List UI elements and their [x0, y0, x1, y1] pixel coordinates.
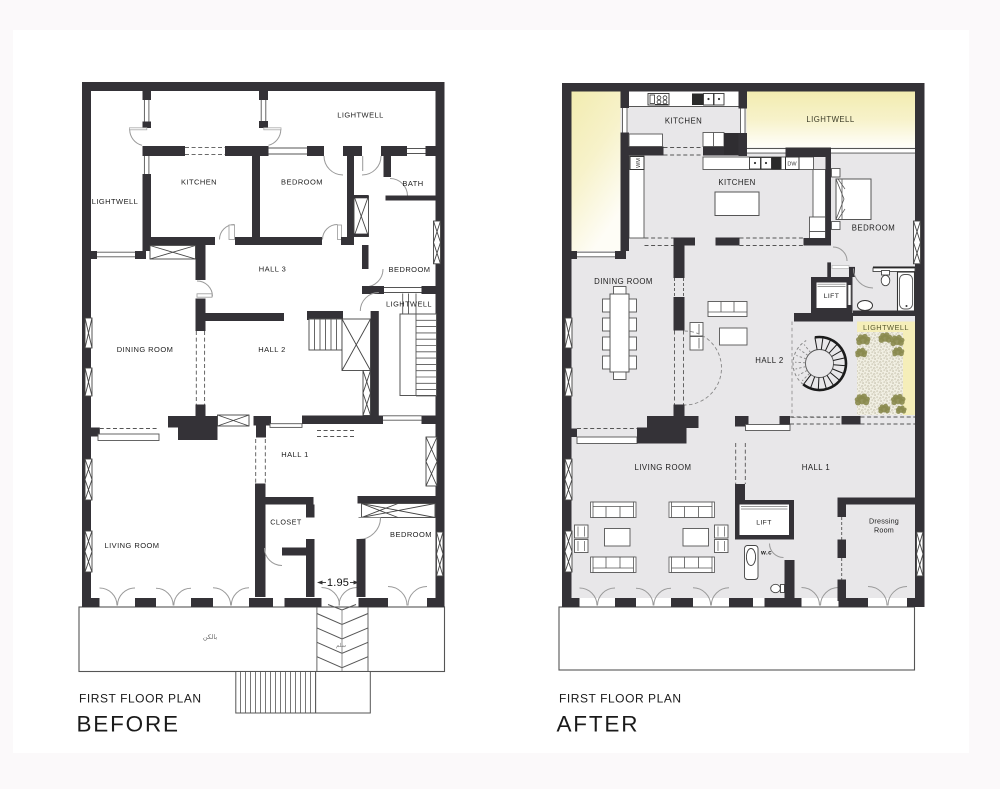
svg-text:BATH: BATH: [402, 179, 423, 188]
svg-text:HALL 1: HALL 1: [281, 450, 308, 459]
svg-text:LIGHTWELL: LIGHTWELL: [863, 323, 909, 332]
svg-text:LIGHTWELL: LIGHTWELL: [337, 111, 384, 120]
svg-text:BEFORE: BEFORE: [77, 712, 180, 737]
svg-text:HALL 2: HALL 2: [755, 356, 783, 365]
svg-text:LIFT: LIFT: [756, 520, 772, 527]
svg-text:WM: WM: [636, 158, 642, 168]
svg-text:1.95: 1.95: [327, 577, 349, 589]
svg-text:LIVING ROOM: LIVING ROOM: [635, 463, 692, 472]
svg-text:FIRST FLOOR PLAN: FIRST FLOOR PLAN: [559, 692, 682, 706]
svg-text:DW: DW: [787, 162, 797, 168]
svg-text:LIFT: LIFT: [824, 293, 840, 300]
svg-text:BEDROOM: BEDROOM: [852, 224, 895, 233]
svg-text:سلم: سلم: [336, 642, 346, 649]
svg-text:KITCHEN: KITCHEN: [718, 178, 755, 187]
svg-text:HALL 2: HALL 2: [258, 345, 285, 354]
svg-text:KITCHEN: KITCHEN: [181, 178, 217, 187]
svg-text:بالكن: بالكن: [203, 633, 217, 641]
svg-text:BEDROOM: BEDROOM: [281, 178, 323, 187]
svg-text:HALL 3: HALL 3: [259, 265, 286, 274]
svg-text:AFTER: AFTER: [557, 712, 640, 737]
svg-text:LIGHTWELL: LIGHTWELL: [92, 197, 139, 206]
svg-text:HALL 1: HALL 1: [802, 463, 830, 472]
svg-text:BEDROOM: BEDROOM: [389, 265, 431, 274]
svg-text:DINING ROOM: DINING ROOM: [117, 345, 174, 354]
svg-text:CLOSET: CLOSET: [270, 518, 302, 527]
svg-text:DINING ROOM: DINING ROOM: [594, 277, 653, 286]
svg-text:KITCHEN: KITCHEN: [665, 117, 702, 126]
svg-text:LIGHTWELL: LIGHTWELL: [386, 300, 432, 309]
svg-text:Room: Room: [874, 526, 894, 535]
svg-text:FIRST FLOOR PLAN: FIRST FLOOR PLAN: [79, 692, 202, 706]
svg-text:w.c: w.c: [760, 550, 772, 557]
svg-text:LIGHTWELL: LIGHTWELL: [806, 115, 854, 124]
svg-text:LIVING ROOM: LIVING ROOM: [105, 541, 160, 550]
svg-text:Dressing: Dressing: [869, 517, 899, 526]
svg-text:BEDROOM: BEDROOM: [390, 530, 432, 539]
